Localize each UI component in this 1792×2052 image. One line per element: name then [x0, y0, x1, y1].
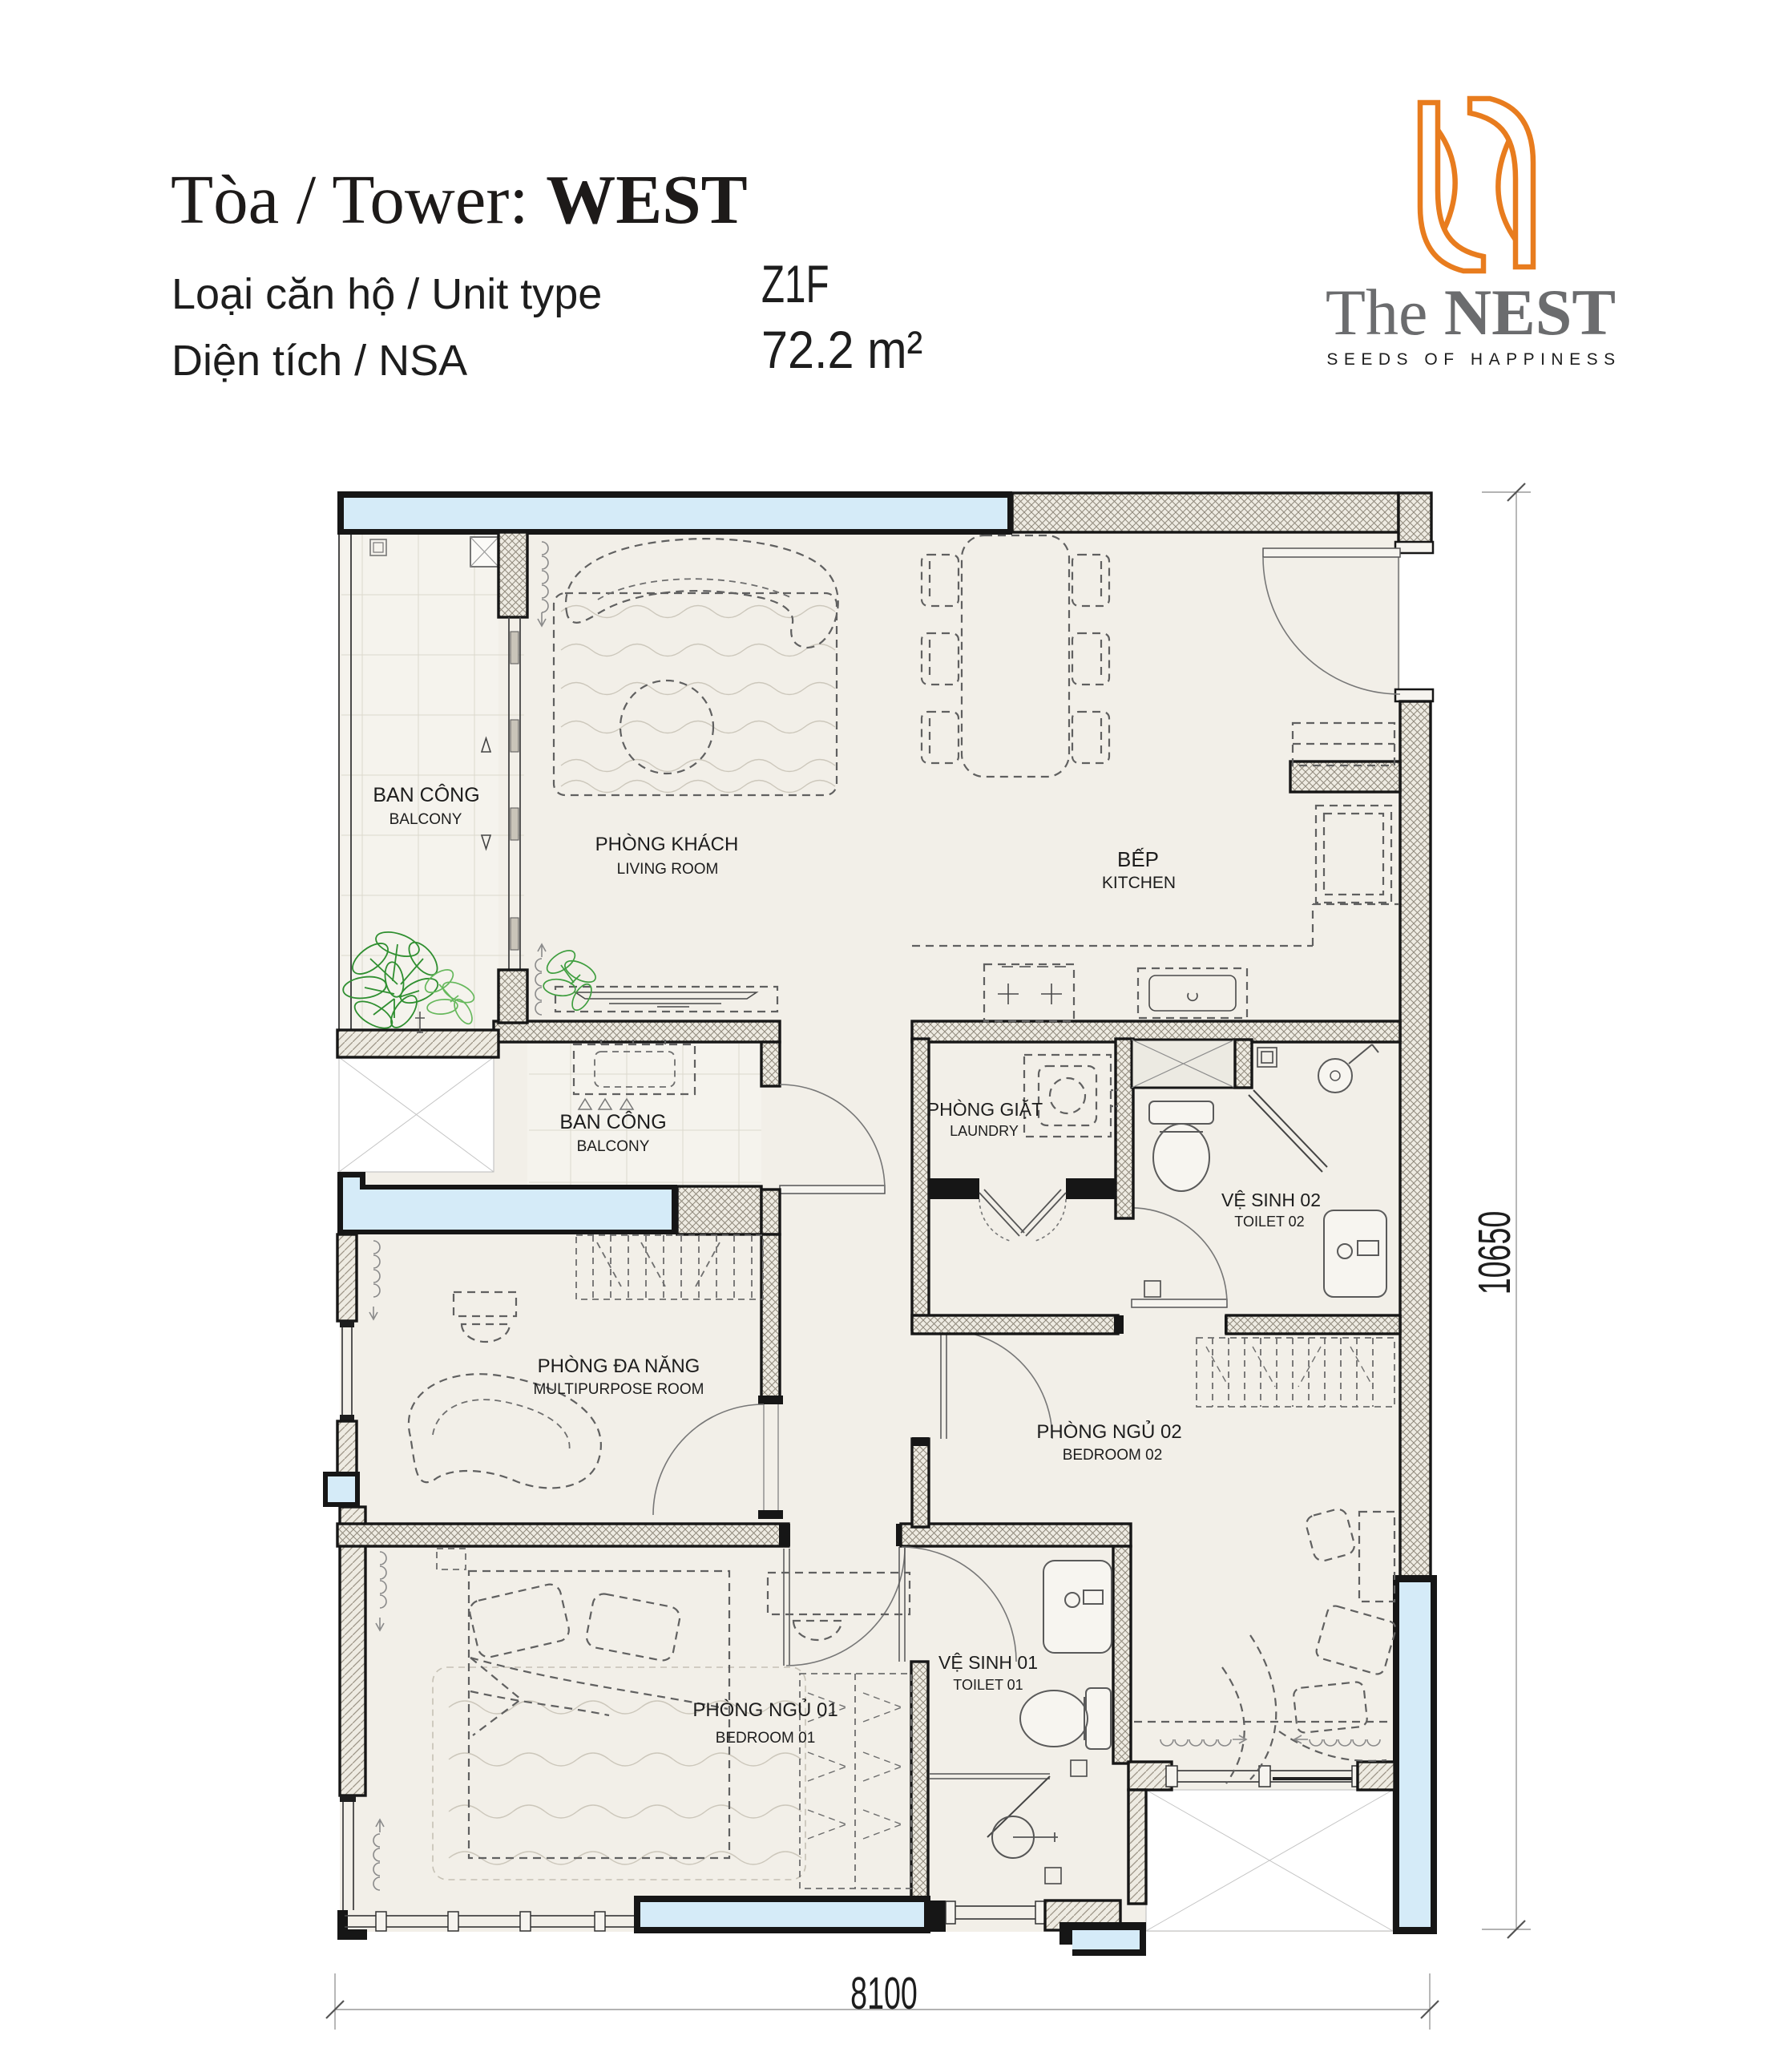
svg-text:Loại căn hộ / Unit type: Loại căn hộ / Unit type [172, 270, 602, 318]
svg-text:Tòa / Tower: WEST: Tòa / Tower: WEST [171, 160, 748, 238]
svg-text:BEDROOM 01: BEDROOM 01 [716, 1730, 816, 1747]
svg-text:BALCONY: BALCONY [577, 1138, 650, 1155]
svg-text:BEDROOM 02: BEDROOM 02 [1063, 1447, 1163, 1464]
svg-text:PHÒNG KHÁCH: PHÒNG KHÁCH [595, 834, 739, 855]
svg-text:PHÒNG NGỦ 01: PHÒNG NGỦ 01 [692, 1698, 837, 1721]
svg-text:Z1F: Z1F [761, 255, 829, 313]
svg-text:SEEDS OF HAPPINESS: SEEDS OF HAPPINESS [1326, 350, 1620, 369]
svg-text:TOILET 02: TOILET 02 [1234, 1214, 1304, 1230]
svg-text:MULTIPURPOSE ROOM: MULTIPURPOSE ROOM [534, 1381, 704, 1398]
svg-text:BẾP: BẾP [1117, 847, 1159, 871]
svg-text:BAN CÔNG: BAN CÔNG [373, 783, 479, 806]
svg-text:PHÒNG GIẶT: PHÒNG GIẶT [927, 1099, 1043, 1120]
svg-text:PHÒNG NGỦ 02: PHÒNG NGỦ 02 [1036, 1420, 1181, 1443]
svg-text:LAUNDRY: LAUNDRY [950, 1123, 1019, 1139]
svg-text:LIVING ROOM: LIVING ROOM [617, 861, 719, 878]
svg-text:Diện tích / NSA: Diện tích / NSA [172, 337, 467, 385]
svg-text:BALCONY: BALCONY [389, 811, 462, 828]
svg-text:The NEST: The NEST [1326, 276, 1616, 349]
svg-text:8100: 8100 [850, 1968, 918, 2019]
svg-text:72.2 m²: 72.2 m² [761, 321, 922, 380]
svg-text:PHÒNG ĐA NĂNG: PHÒNG ĐA NĂNG [538, 1355, 700, 1377]
svg-text:VỆ SINH 02: VỆ SINH 02 [1221, 1190, 1321, 1210]
svg-text:VỆ SINH 01: VỆ SINH 01 [938, 1652, 1038, 1673]
svg-text:10650: 10650 [1469, 1211, 1520, 1295]
svg-text:BAN CÔNG: BAN CÔNG [559, 1110, 666, 1133]
svg-text:KITCHEN: KITCHEN [1102, 874, 1176, 892]
svg-text:TOILET 01: TOILET 01 [953, 1677, 1023, 1693]
